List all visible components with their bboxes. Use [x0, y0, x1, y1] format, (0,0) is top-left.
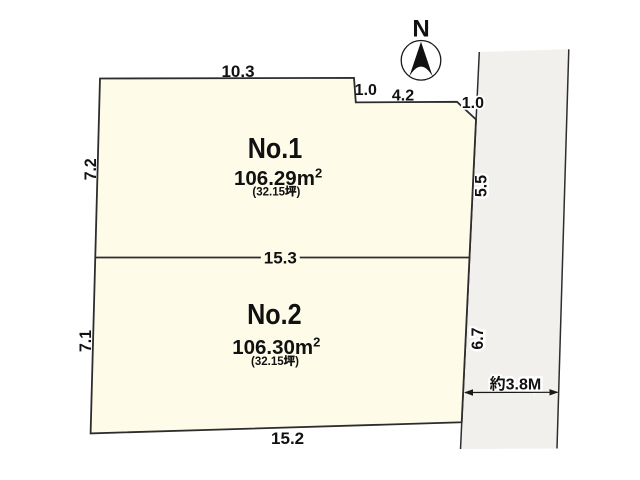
- svg-text:1.0: 1.0: [355, 82, 377, 99]
- svg-text:No.2: No.2: [247, 299, 302, 331]
- svg-text:(32.15: (32.15: [251, 356, 284, 368]
- svg-text:No.1: No.1: [248, 133, 303, 165]
- svg-text:): ): [297, 186, 301, 198]
- svg-text:15.2: 15.2: [271, 429, 304, 448]
- svg-text:10.3: 10.3: [221, 62, 254, 81]
- svg-text:(32.15: (32.15: [252, 186, 285, 198]
- svg-text:3.8M: 3.8M: [506, 376, 542, 393]
- svg-text:7.1: 7.1: [76, 330, 95, 352]
- svg-text:15.3: 15.3: [264, 249, 297, 268]
- svg-text:7.2: 7.2: [81, 158, 100, 180]
- svg-text:4.2: 4.2: [392, 87, 414, 104]
- svg-text:6.7: 6.7: [468, 328, 487, 350]
- svg-text:): ): [295, 356, 299, 368]
- svg-text:5.5: 5.5: [472, 175, 491, 197]
- svg-text:1.0: 1.0: [462, 95, 484, 112]
- svg-text:N: N: [412, 16, 429, 43]
